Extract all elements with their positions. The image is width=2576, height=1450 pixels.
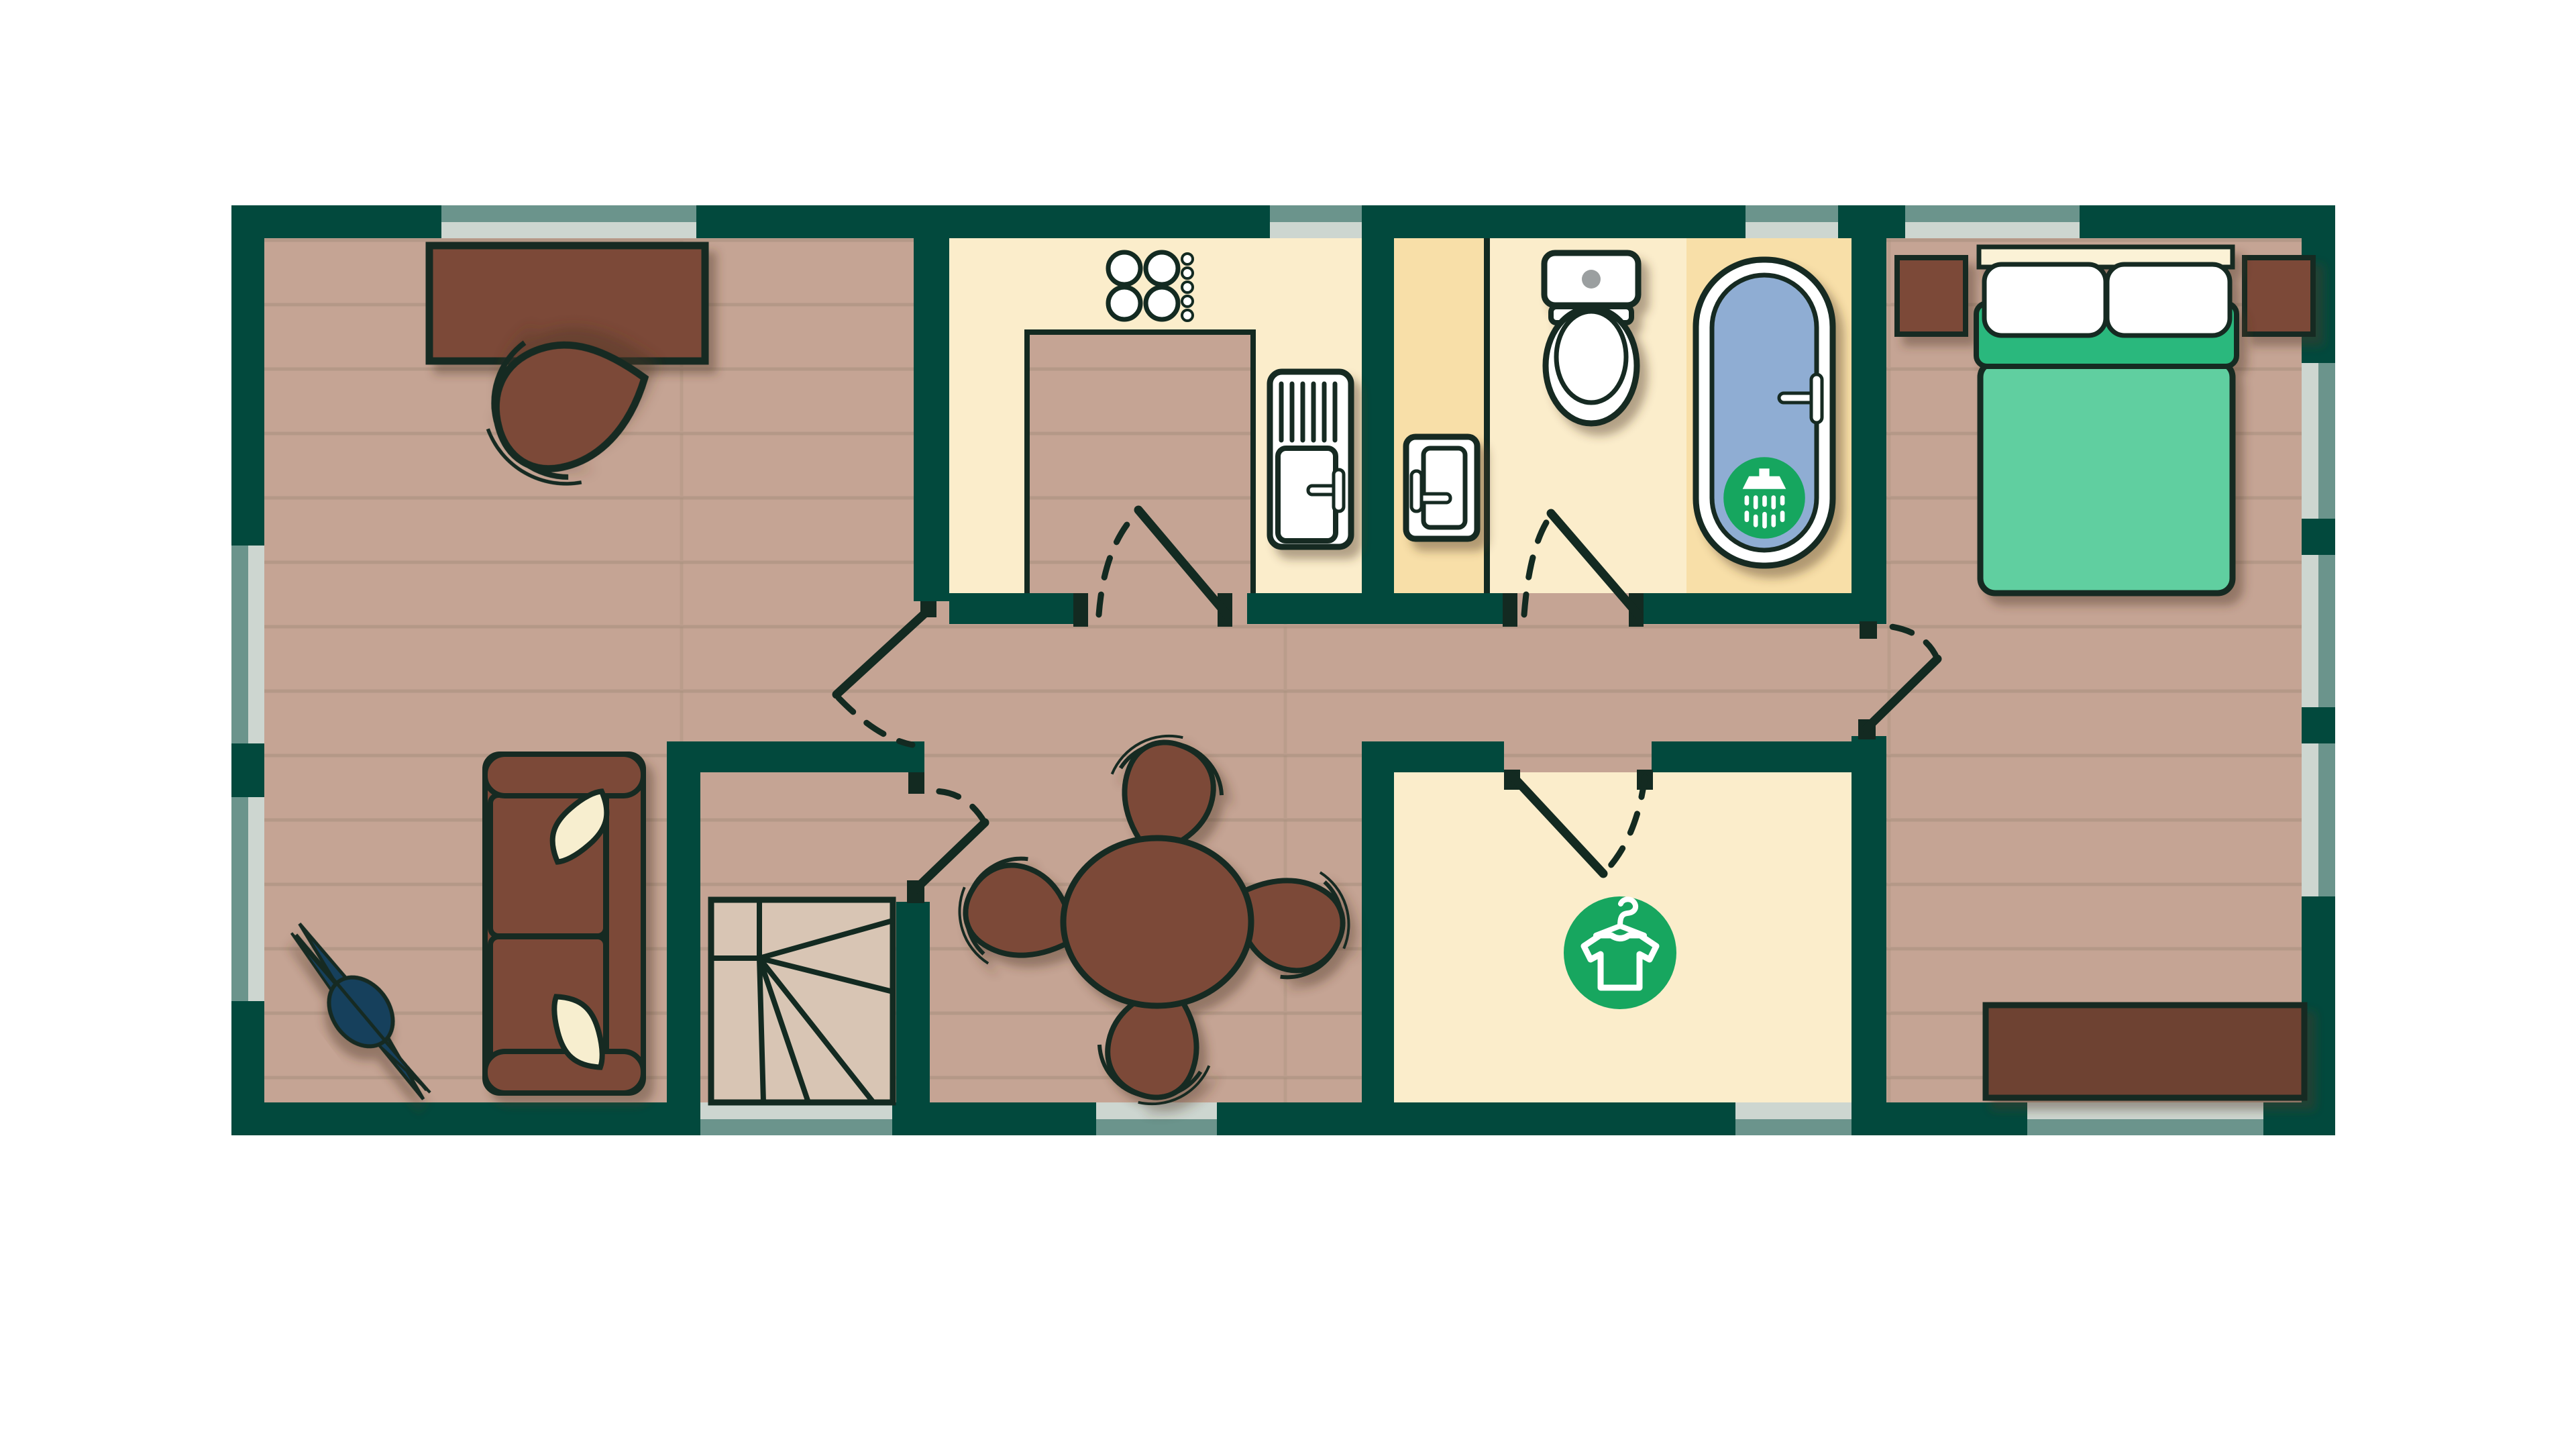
window xyxy=(231,546,264,743)
bed-pillow xyxy=(2107,264,2230,335)
wall-bath-bottom-left xyxy=(1394,593,1503,624)
wall-closet-top-left xyxy=(1394,741,1504,772)
bed xyxy=(1976,247,2237,593)
wall-kitchen-bottom-left xyxy=(949,593,1073,624)
floor-plan xyxy=(0,0,2576,1450)
kitchen-sink xyxy=(1270,372,1351,547)
outer-wall-bottom xyxy=(231,1102,2335,1135)
stove-knob xyxy=(1182,282,1193,293)
washer-door xyxy=(1424,448,1465,527)
dresser xyxy=(1986,1005,2304,1098)
window xyxy=(231,797,264,1001)
sofa-armrest xyxy=(485,754,643,796)
wall-bath-bedroom xyxy=(1851,205,1886,624)
bathtub xyxy=(1696,260,1833,566)
wall-closet-left xyxy=(1362,741,1394,1135)
sofa xyxy=(485,754,643,1093)
wall-living-kitchen xyxy=(914,238,949,601)
window xyxy=(1746,205,1838,238)
washer-handle xyxy=(1411,471,1421,511)
window xyxy=(441,205,696,238)
bed-pillow xyxy=(1984,264,2106,335)
toilet xyxy=(1544,253,1638,423)
stove-knob xyxy=(1182,296,1193,307)
sofa-backrest xyxy=(606,760,643,1090)
tub-faucet xyxy=(1811,374,1822,423)
window xyxy=(2302,743,2335,896)
wall-stairs-top xyxy=(667,741,924,772)
floor-plan-page xyxy=(0,0,2576,1450)
sofa-armrest xyxy=(485,1051,643,1093)
stove-knob xyxy=(1182,268,1193,278)
toilet-flush-button xyxy=(1582,270,1601,289)
window xyxy=(1270,205,1362,238)
window xyxy=(2027,1102,2263,1135)
utility-partition xyxy=(1484,238,1490,593)
wall-closet-right xyxy=(1851,736,1886,1135)
window xyxy=(700,1102,892,1135)
wall-closet-top-right xyxy=(1652,741,1851,772)
window xyxy=(1096,1102,1217,1135)
wall-kitchen-bottom-right xyxy=(1247,593,1362,624)
wall-stairs-right xyxy=(896,902,930,1135)
dining-table xyxy=(1063,838,1251,1006)
kitchen-inner-floor xyxy=(1027,332,1253,593)
wall-kitchen-utility xyxy=(1362,238,1394,624)
stove-knob xyxy=(1182,254,1193,264)
staircase xyxy=(711,900,893,1102)
window xyxy=(1735,1102,1860,1135)
wardrobe-icon xyxy=(1564,896,1676,1009)
sink-faucet xyxy=(1334,470,1344,511)
shower-icon xyxy=(1723,457,1805,539)
window xyxy=(2302,363,2335,519)
nightstand-right xyxy=(2245,258,2313,334)
wall-stairs-left xyxy=(667,741,700,1135)
window xyxy=(2302,555,2335,707)
window xyxy=(1905,205,2080,238)
stove-knob xyxy=(1182,310,1193,321)
nightstand-left xyxy=(1897,258,1966,334)
washing-machine xyxy=(1406,437,1477,539)
bed-blanket xyxy=(1980,362,2233,593)
wall-bath-bottom-right xyxy=(1644,593,1886,624)
